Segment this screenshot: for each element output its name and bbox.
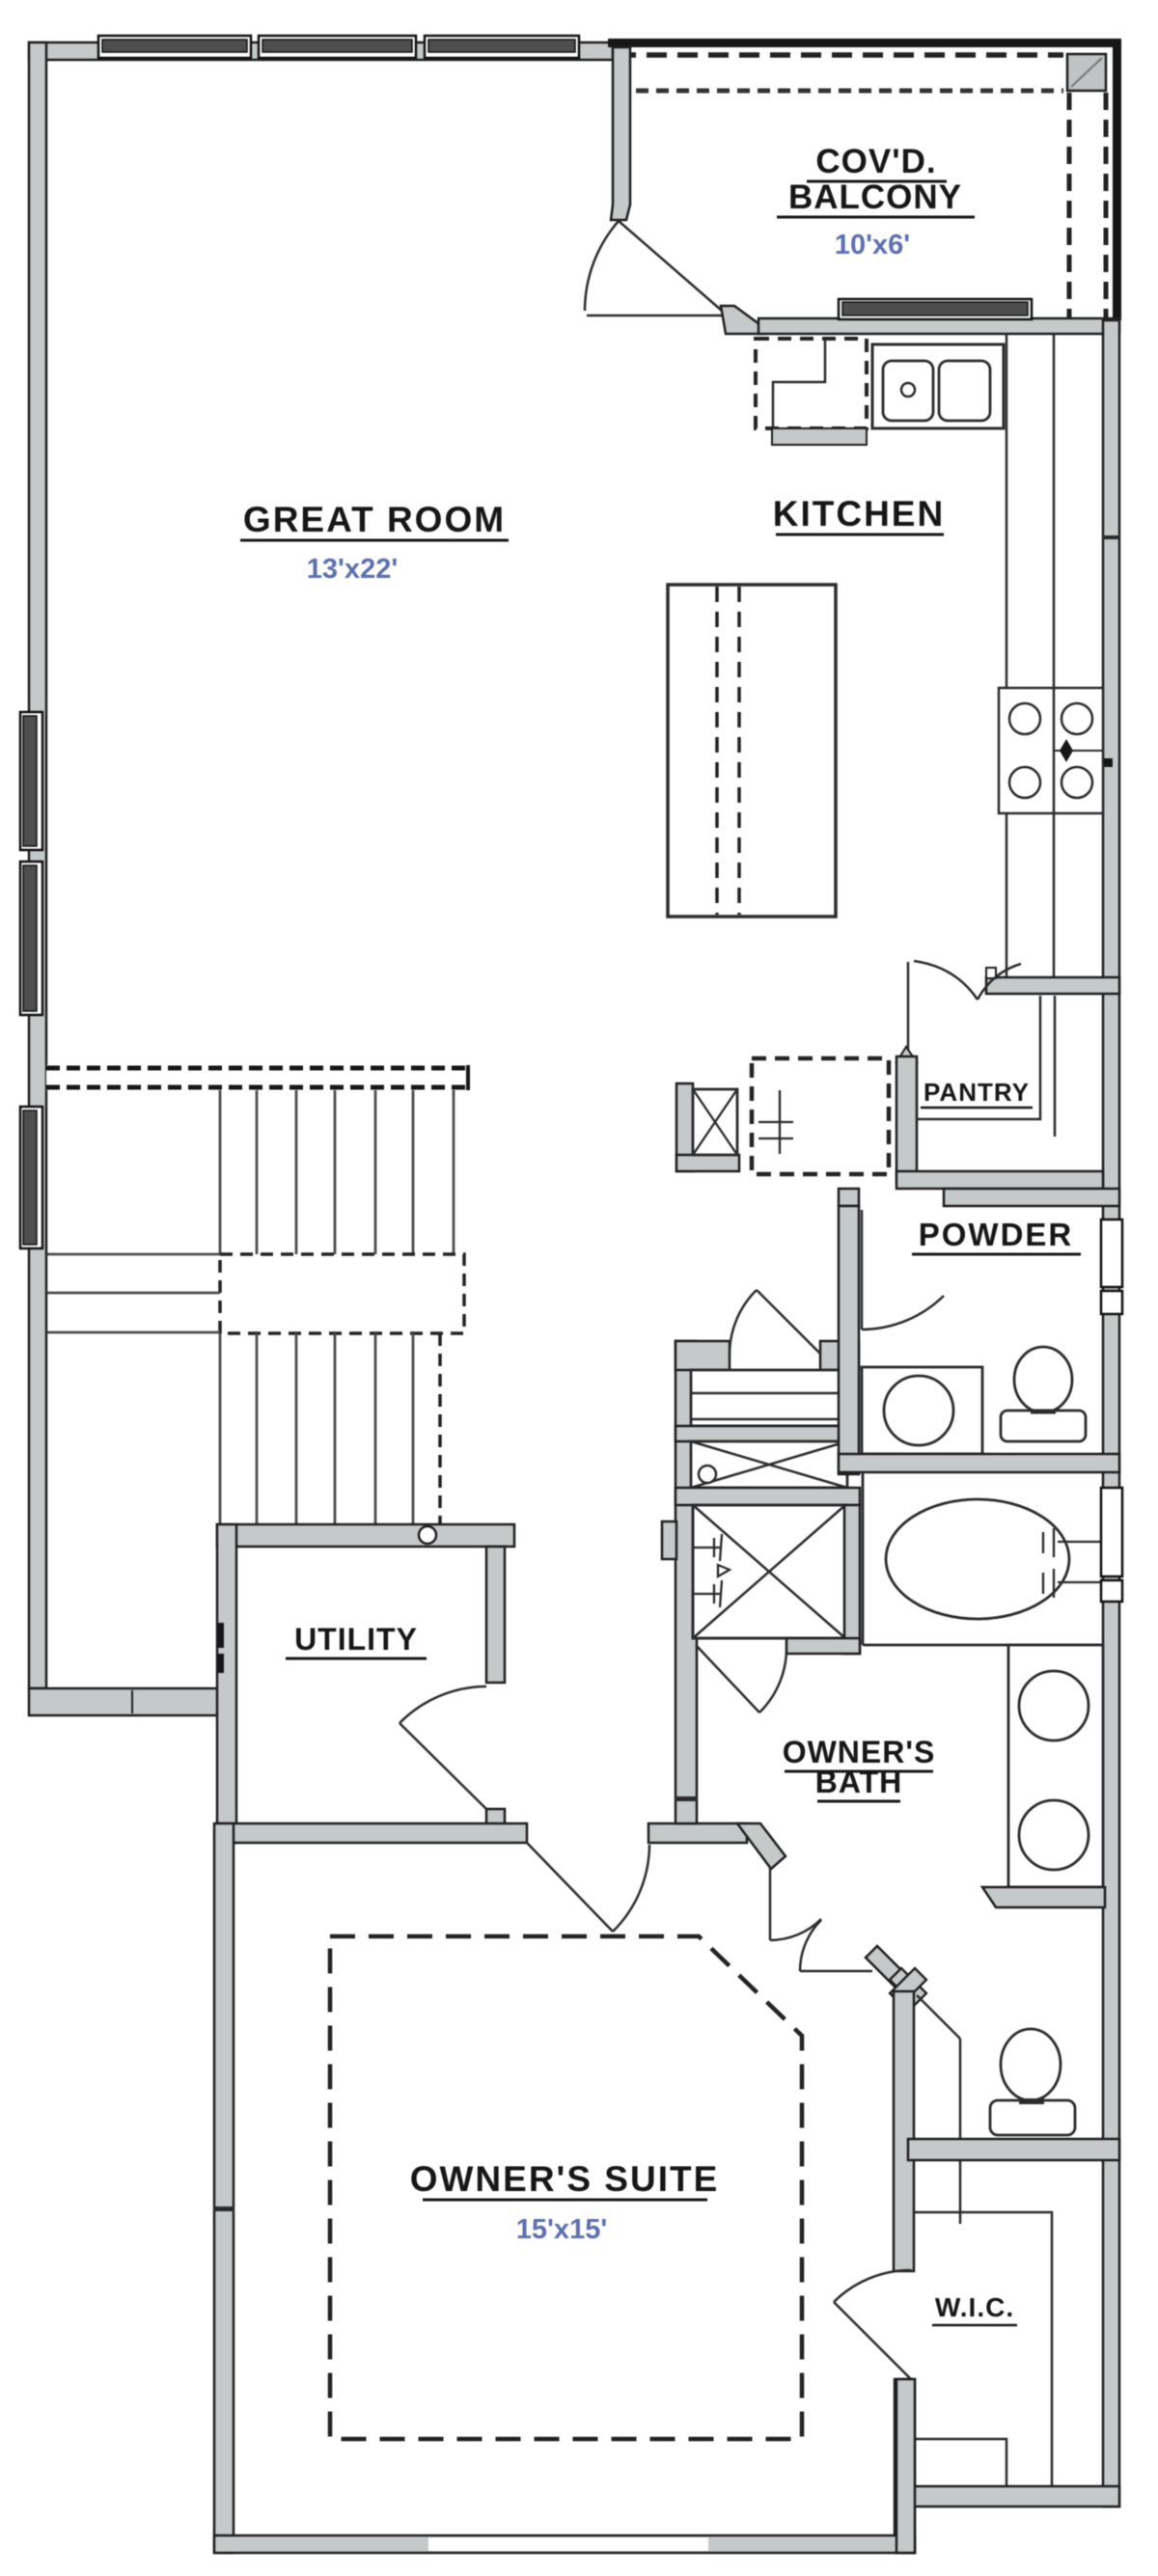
- svg-text:BALCONY: BALCONY: [788, 178, 962, 216]
- svg-text:PANTRY: PANTRY: [924, 1078, 1030, 1107]
- svg-text:UTILITY: UTILITY: [294, 1622, 418, 1657]
- svg-text:10'x6': 10'x6': [835, 230, 910, 260]
- svg-text:KITCHEN: KITCHEN: [773, 494, 945, 534]
- svg-text:15'x15': 15'x15': [516, 2214, 607, 2245]
- svg-text:13'x22': 13'x22': [307, 554, 398, 585]
- svg-text:POWDER: POWDER: [919, 1217, 1074, 1252]
- svg-text:OWNER'S SUITE: OWNER'S SUITE: [410, 2159, 720, 2199]
- svg-text:GREAT ROOM: GREAT ROOM: [243, 500, 506, 539]
- svg-text:COV'D.: COV'D.: [815, 143, 936, 180]
- svg-text:W.I.C.: W.I.C.: [935, 2292, 1014, 2322]
- svg-text:BATH: BATH: [815, 1765, 903, 1799]
